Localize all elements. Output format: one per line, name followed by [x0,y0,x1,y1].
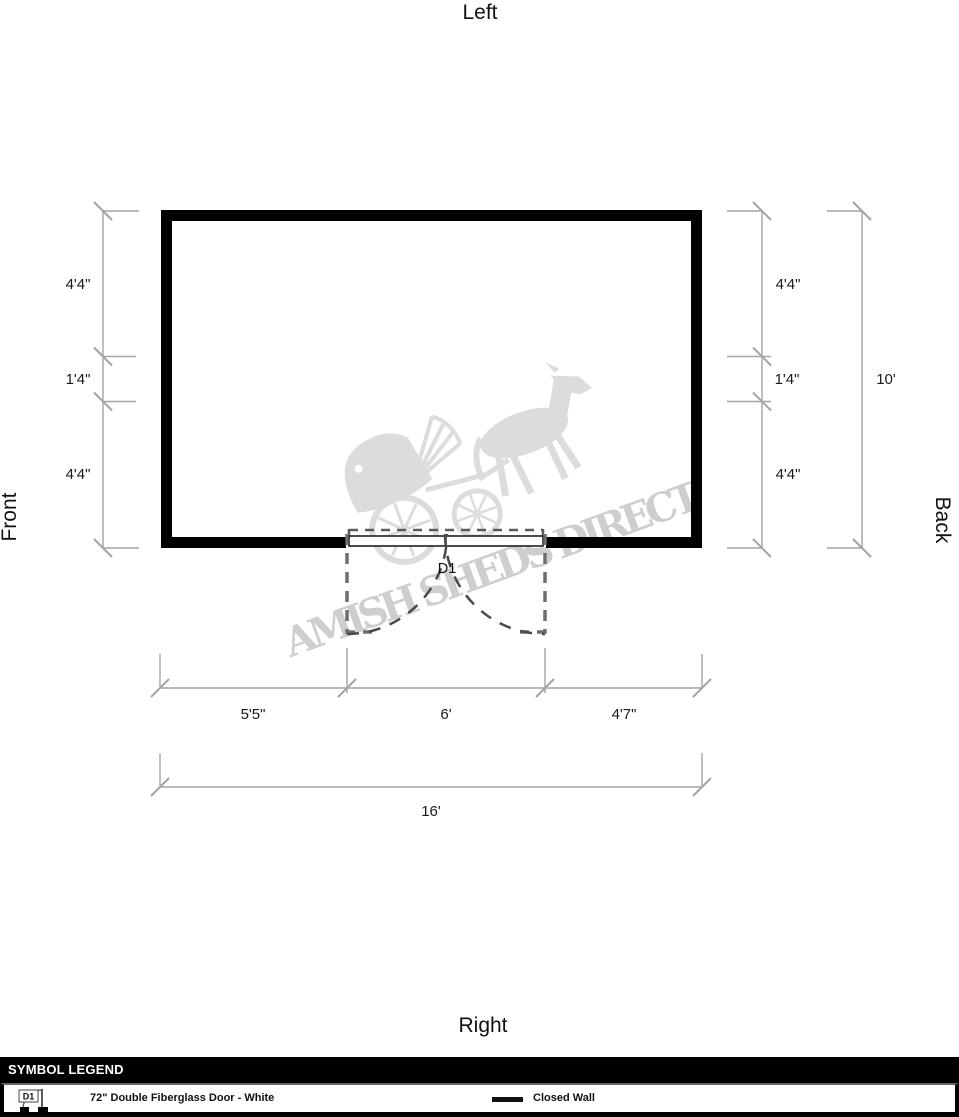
dim-chain-left [94,202,139,557]
dim-label-bottom-3: 4'7" [612,706,637,723]
floor-plan: AMISH SHEDS DIRECT D1 [0,0,959,1050]
legend-door-symbol-label: D1 [23,1092,35,1102]
dim-label-bottom-total: 16' [421,803,441,820]
symbol-legend: SYMBOL LEGEND D1 72" Double Fiberglass D… [0,1057,959,1117]
legend-title: SYMBOL LEGEND [8,1062,124,1077]
dim-label-right-total: 10' [876,371,896,388]
dim-label-left-1: 4'4" [66,276,91,293]
closed-wall-line-icon [492,1097,523,1102]
legend-item-door-label: 72" Double Fiberglass Door - White [90,1085,274,1112]
dim-chain-bottom-total [151,753,711,796]
dim-chain-right-total [827,202,871,557]
dim-label-bottom-1: 5'5" [241,706,266,723]
dim-label-left-3: 4'4" [66,466,91,483]
door-label: D1 [438,561,457,577]
dim-label-right-2: 1'4" [775,371,800,388]
dim-label-right-1: 4'4" [776,276,801,293]
legend-item-wall-label: Closed Wall [533,1085,595,1112]
d1-door-symbol-icon: D1 [16,1086,68,1112]
legend-footer-bar [0,1112,959,1117]
legend-title-bar: SYMBOL LEGEND [0,1057,959,1083]
dim-label-bottom-2: 6' [440,706,451,723]
dim-chain-bottom [151,648,711,697]
dim-label-left-2: 1'4" [66,371,91,388]
legend-row: D1 72" Double Fiberglass Door - White Cl… [0,1083,959,1112]
watermark: AMISH SHEDS DIRECT [225,327,713,667]
dim-label-right-3: 4'4" [776,466,801,483]
dim-chain-right [727,202,771,557]
